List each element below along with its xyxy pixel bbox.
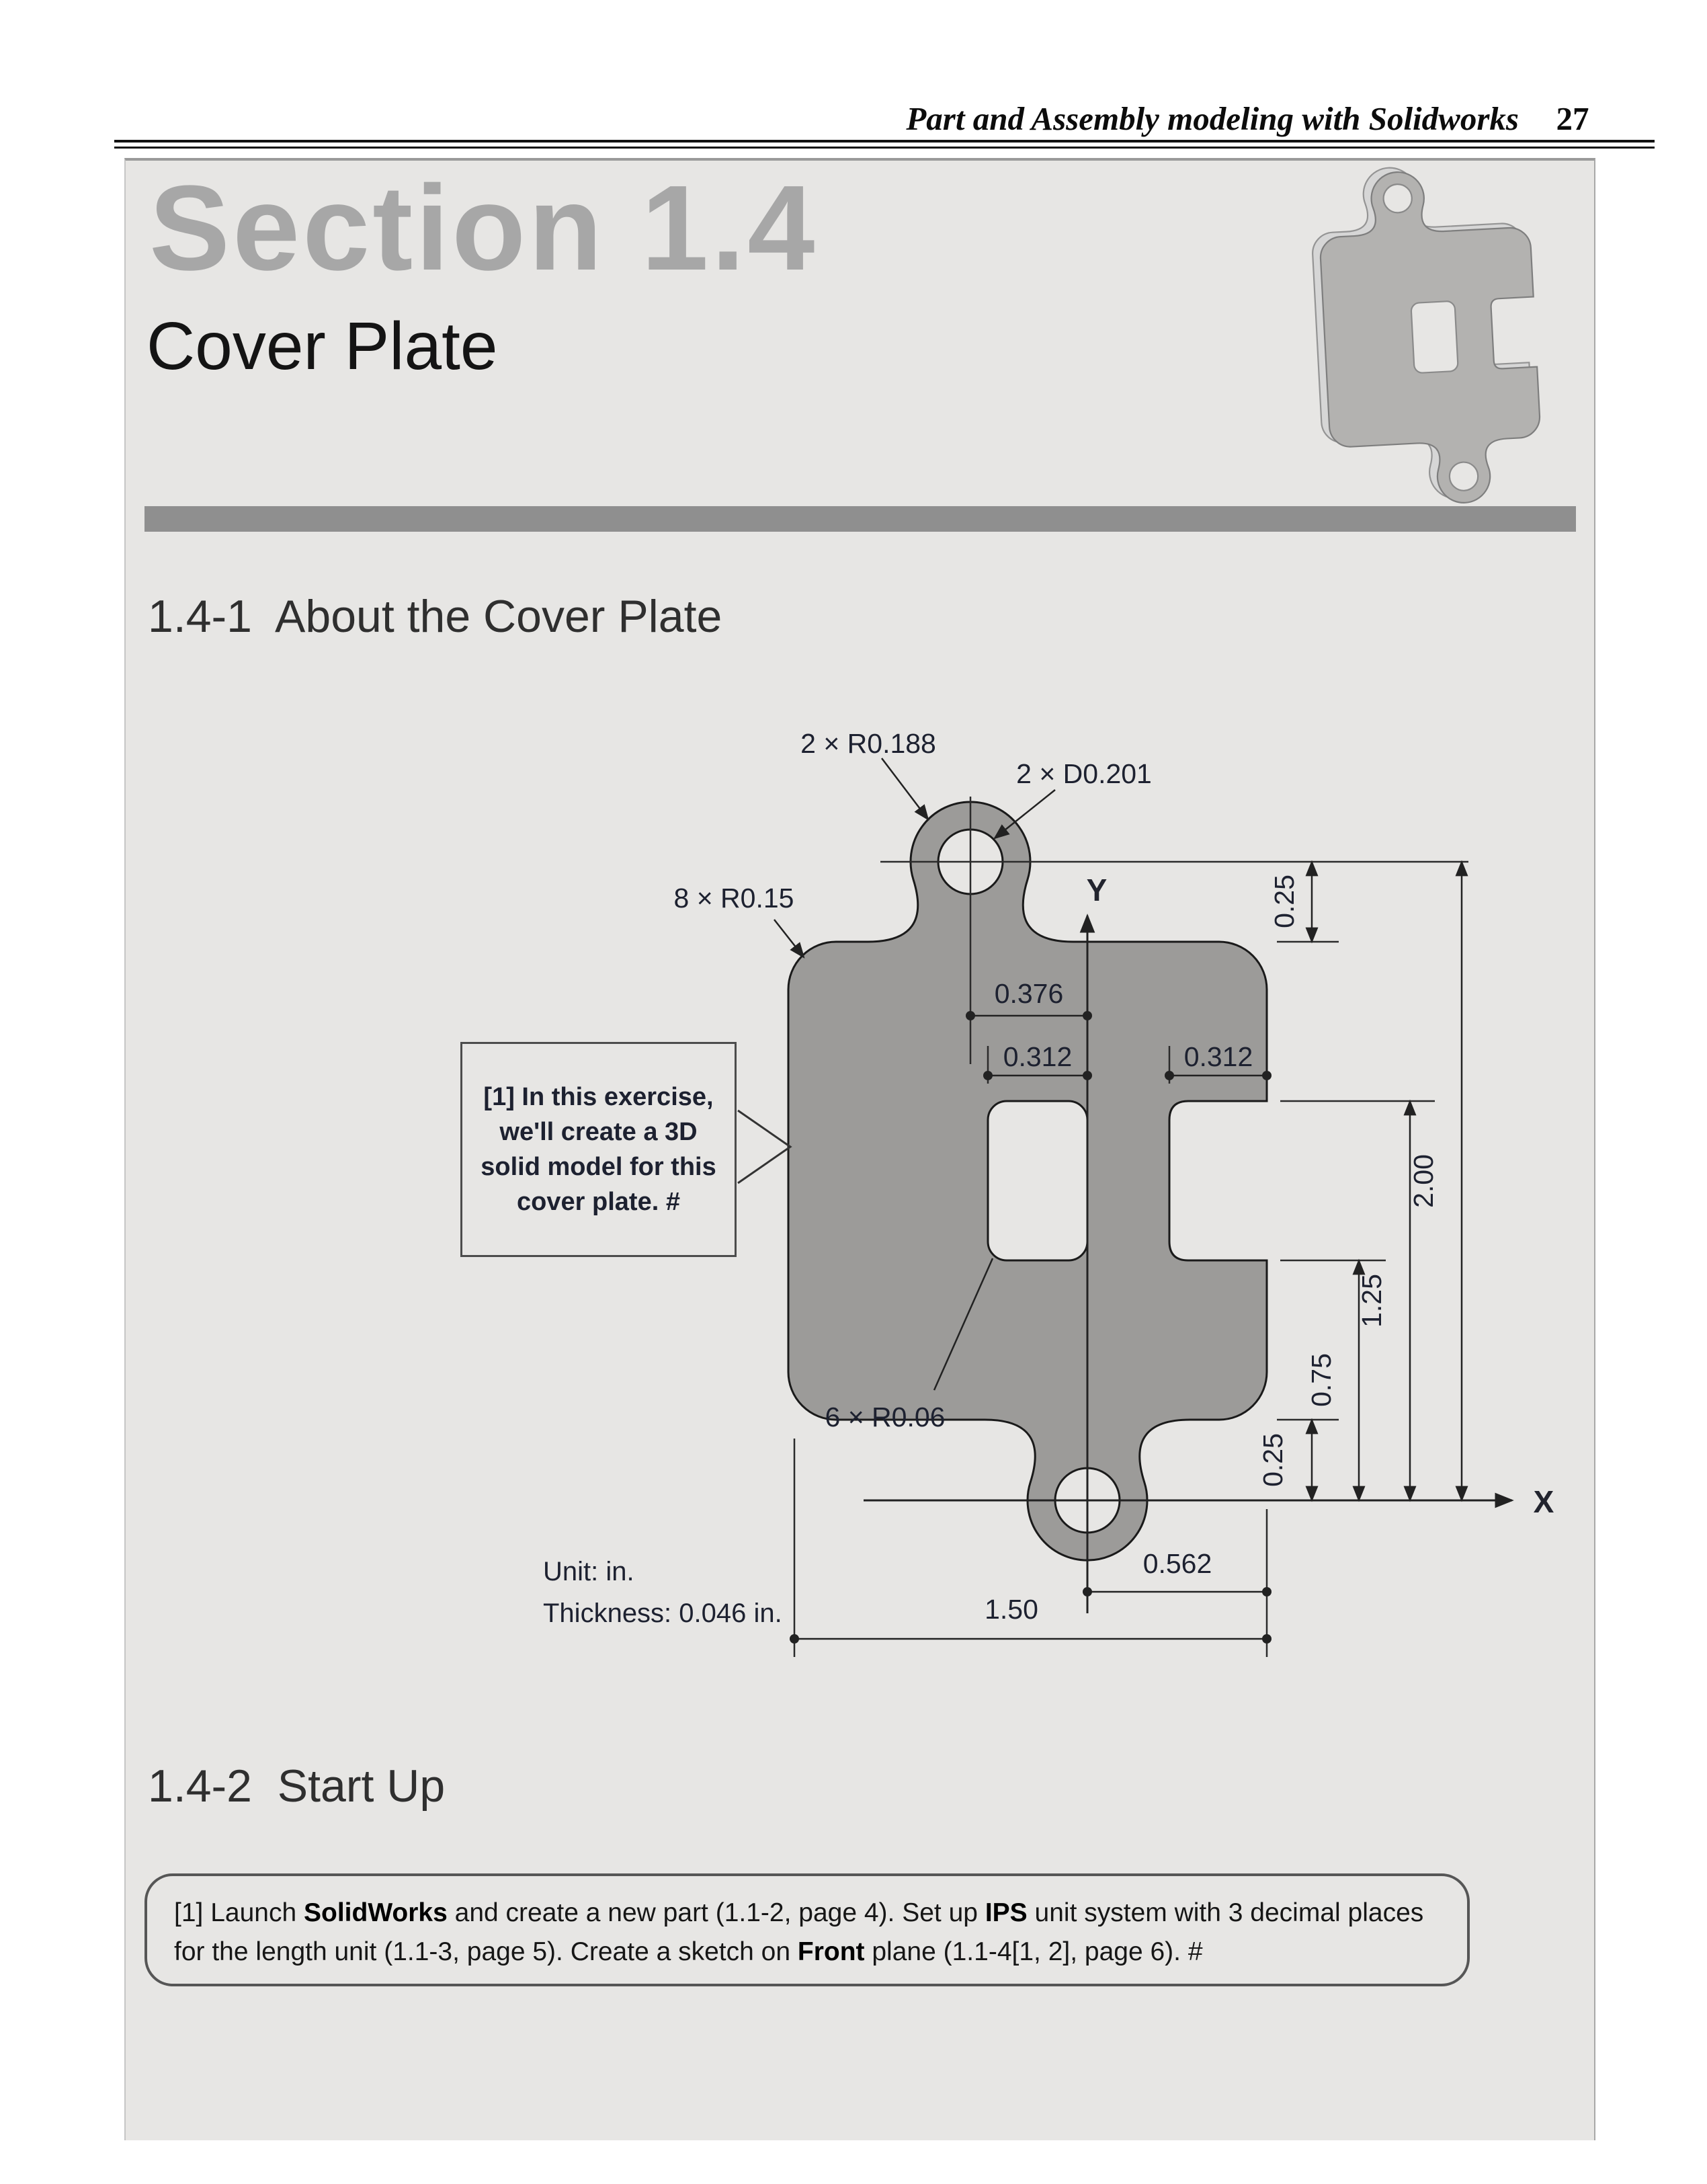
instruction-bold-front: Front: [798, 1937, 865, 1966]
instruction-box: [1] Launch SolidWorks and create a new p…: [144, 1873, 1470, 1986]
instruction-bold-solidworks: SolidWorks: [304, 1898, 448, 1927]
instruction-text: plane (1.1-4[1, 2], page 6). #: [865, 1937, 1203, 1966]
dim-label-corner-radius: 8 × R0.15: [674, 883, 794, 914]
dim-label-notch-bottom-height: 0.75: [1306, 1353, 1337, 1407]
callout-line: solid model for this: [462, 1149, 735, 1184]
instruction-bold-ips: IPS: [985, 1898, 1028, 1927]
part-3d-bottom-hole: [1449, 461, 1479, 491]
unit-note: Unit: in.: [543, 1557, 634, 1587]
dim-label-inner-radius: 6 × R0.06: [825, 1402, 946, 1432]
instruction-line: [1] Launch SolidWorks and create a new p…: [174, 1894, 1467, 1933]
heading-startup: 1.4-2 Start Up: [148, 1760, 445, 1812]
cover-plate-drawing: 2 × R0.188 2 × D0.201 8 × R0.15 6 × R0.0…: [0, 0, 1707, 2184]
instruction-text: and create a new part (1.1-2, page 4). S…: [448, 1898, 985, 1927]
dim-label-plate-width: 1.50: [985, 1594, 1038, 1625]
callout-box: [1] In this exercise, we'll create a 3D …: [460, 1042, 737, 1257]
dim-label-hole-diameter: 2 × D0.201: [1016, 758, 1152, 789]
part-3d-top-hole: [1383, 184, 1413, 213]
dim-label-slot-width: 0.312: [1003, 1041, 1073, 1072]
part-3d-slot: [1411, 301, 1458, 374]
thickness-note: Thickness: 0.046 in.: [543, 1599, 782, 1629]
dim-label-lug-bottom-offset: 0.25: [1257, 1433, 1288, 1487]
part-3d-render: [1308, 161, 1544, 510]
dim-label-right-offset: 0.562: [1143, 1548, 1212, 1579]
plate-slot: [988, 1101, 1087, 1260]
dim-label-notch-top-height: 1.25: [1356, 1274, 1387, 1328]
instruction-text: for the length unit (1.1-3, page 5). Cre…: [174, 1937, 798, 1966]
book-page: Part and Assembly modeling with Solidwor…: [0, 0, 1707, 2184]
dim-label-lug-offset: 0.376: [995, 978, 1064, 1009]
dim-label-lug-top-offset: 0.25: [1269, 875, 1300, 928]
y-axis-label: Y: [1087, 873, 1108, 907]
dim-label-total-height: 2.00: [1408, 1154, 1439, 1208]
callout-arrow: [738, 1110, 790, 1183]
dim-label-lug-radius: 2 × R0.188: [800, 728, 936, 759]
instruction-text: [1] Launch: [174, 1898, 304, 1927]
callout-line: [1] In this exercise,: [462, 1080, 735, 1115]
instruction-line: for the length unit (1.1-3, page 5). Cre…: [174, 1933, 1467, 1972]
callout-line: cover plate. #: [462, 1184, 735, 1219]
dim-label-notch-depth: 0.312: [1184, 1041, 1253, 1072]
callout-line: we'll create a 3D: [462, 1115, 735, 1149]
instruction-text: unit system with 3 decimal places: [1028, 1898, 1424, 1927]
x-axis-label: X: [1534, 1484, 1554, 1519]
